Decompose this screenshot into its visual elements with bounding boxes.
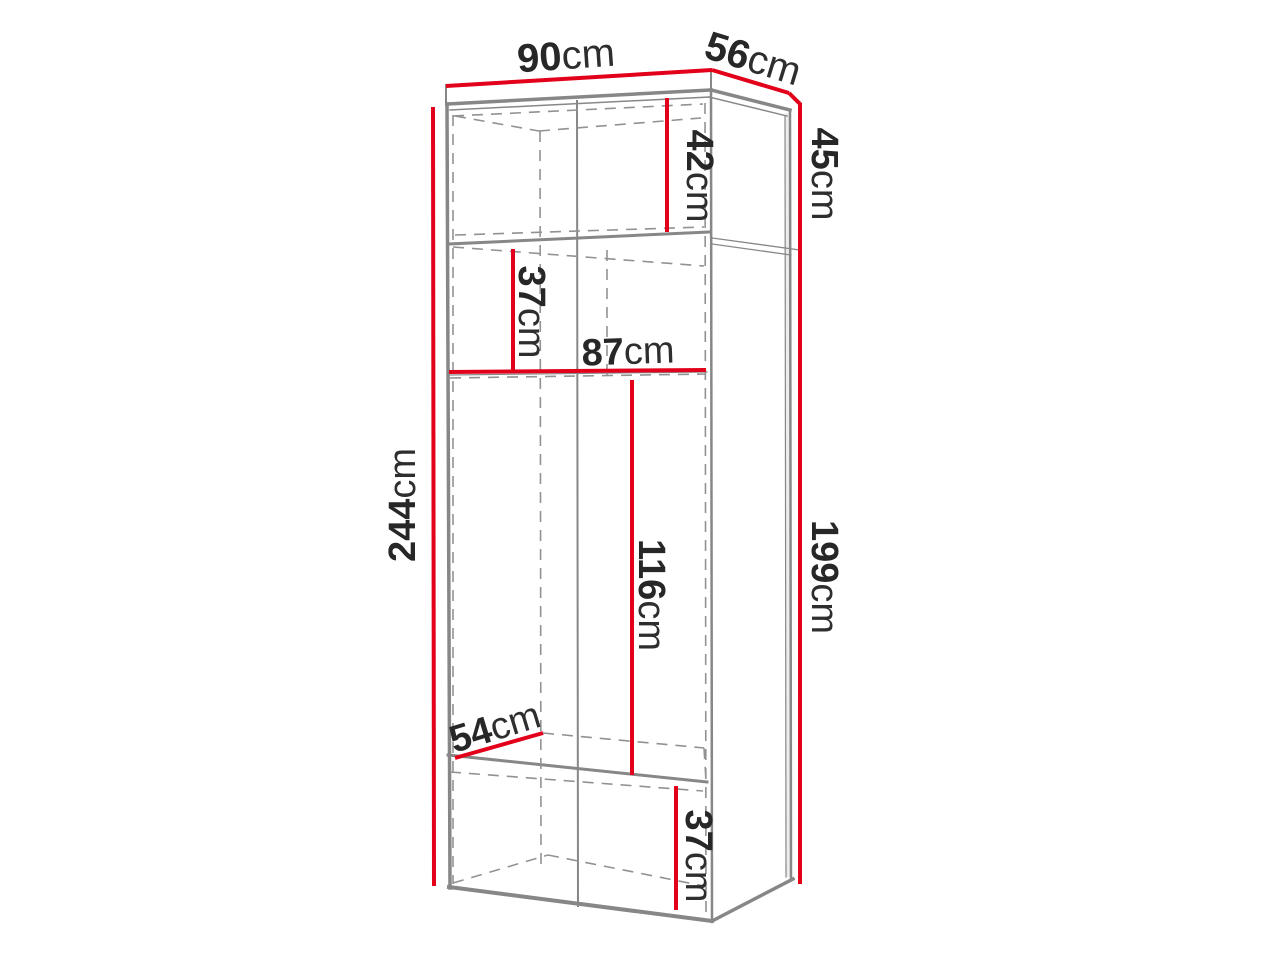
- bottom-front-edge: [449, 887, 712, 921]
- hidden-back-left-edge: [540, 131, 541, 868]
- wardrobe-diagram: 90cm 56cm 45cm 42cm 37cm 87cm 244cm 116c…: [0, 0, 1280, 960]
- dim-unit: cm: [485, 694, 546, 749]
- dim-value: 37: [510, 266, 552, 308]
- dim-label-interior-depth: 54cm: [444, 694, 545, 761]
- dim-label-upper-inner-height: 42cm: [678, 130, 720, 223]
- dim-label-hanging-height: 116cm: [630, 539, 672, 651]
- hidden-base-left-diagonal: [453, 855, 548, 883]
- dim-label-top-width: 90cm: [516, 31, 617, 82]
- hidden-top-back-edge: [539, 118, 701, 131]
- dim-label-shelf-spacing: 37cm: [510, 266, 552, 359]
- structure-solid: [446, 71, 800, 921]
- dim-value: 87: [581, 331, 625, 374]
- dim-unit: cm: [678, 172, 720, 223]
- dimension-lines: [433, 70, 800, 910]
- diagram-canvas: 90cm 56cm 45cm 42cm 37cm 87cm 244cm 116c…: [0, 0, 1280, 960]
- back-right-edge: [790, 110, 791, 879]
- left-edge: [447, 104, 450, 888]
- dim-unit: cm: [803, 583, 845, 634]
- dim-label-lower-section-height: 199cm: [803, 520, 845, 634]
- dim-value: 37: [677, 810, 719, 852]
- dim-unit: cm: [560, 31, 616, 79]
- dim-unit: cm: [742, 37, 806, 95]
- top-front-edge: [447, 90, 711, 104]
- dim-label-total-height: 244cm: [382, 448, 424, 562]
- dim-unit: cm: [803, 170, 845, 221]
- dim-line-total-height: [433, 107, 434, 886]
- dim-unit: cm: [630, 600, 672, 651]
- dim-label-interior-width: 87cm: [581, 329, 675, 374]
- dim-unit: cm: [623, 329, 675, 373]
- dim-value: 199: [803, 520, 845, 583]
- dim-label-upper-section-height: 45cm: [803, 128, 845, 221]
- dim-unit: cm: [677, 852, 719, 903]
- bottom-side-edge: [712, 879, 793, 921]
- hidden-right-inner-edge: [705, 103, 706, 913]
- dim-value: 45: [803, 128, 845, 170]
- upper-shelf-edge: [448, 232, 710, 244]
- dim-unit: cm: [510, 308, 552, 359]
- dim-value: 90: [516, 34, 563, 81]
- dim-value: 42: [678, 130, 720, 172]
- hidden-bottom-shelf-under: [450, 772, 703, 791]
- center-divider: [577, 101, 578, 906]
- hidden-floor-back-edge: [543, 733, 704, 748]
- dimension-labels: 90cm 56cm 45cm 42cm 37cm 87cm 244cm 116c…: [382, 24, 845, 903]
- hidden-upper-shelf-back: [453, 247, 704, 266]
- dim-value: 116: [630, 539, 672, 600]
- hidden-top-left-diagonal: [455, 116, 539, 131]
- dim-value: 244: [382, 499, 424, 562]
- dim-unit: cm: [382, 448, 424, 499]
- dim-label-bottom-inner-height: 37cm: [677, 810, 719, 903]
- side-seam-lower: [712, 244, 791, 255]
